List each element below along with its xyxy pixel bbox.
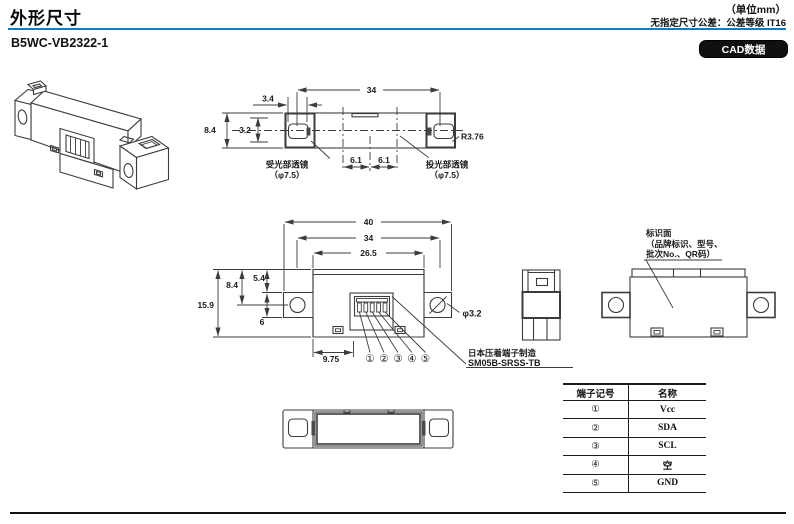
table-row: ② SDA	[563, 419, 706, 437]
pin-2-callout: ②	[379, 353, 389, 365]
tolerance-note: 无指定尺寸公差：公差等级 IT16	[650, 15, 786, 29]
front-dim-hole-dia: φ3.2	[463, 309, 482, 319]
bottom-view	[283, 410, 453, 448]
marking-surface-detail-2: 批次No.、QR码）	[646, 249, 715, 259]
top-dim-3-2: 3.2	[239, 125, 251, 135]
cad-data-button[interactable]: CAD数据	[699, 40, 788, 58]
top-dim-34: 34	[367, 85, 377, 95]
marking-surface-label: 标识面	[645, 228, 672, 238]
terminal-mark: ④	[563, 456, 629, 474]
terminal-name: SDA	[629, 419, 707, 437]
table-row: ③ SCL	[563, 437, 706, 455]
connector-maker-note: 日本压着端子制造	[468, 348, 537, 358]
top-dim-8-4: 8.4	[204, 125, 216, 135]
terminal-table: 端子记号 名称 ① Vcc ② SDA ③ SCL ④ 空 ⑤ GND	[563, 383, 706, 493]
terminal-mark: ②	[563, 419, 629, 437]
top-view: 34 3.4 8.4 3.2 6.1 6.1 R3.76 受光部透镜 （φ7.5…	[204, 85, 484, 180]
front-dim-40: 40	[364, 217, 374, 227]
top-dim-6-1-left: 6.1	[350, 155, 362, 165]
terminal-mark: ⑤	[563, 474, 629, 492]
terminal-mark: ③	[563, 437, 629, 455]
terminal-name: Vcc	[629, 401, 707, 419]
title-underline	[8, 28, 786, 30]
table-header-row: 端子记号 名称	[563, 384, 706, 401]
back-view: 标识面 （品牌标识、型号、 批次No.、QR码）	[602, 228, 775, 337]
pin-4-callout: ④	[407, 353, 417, 365]
front-dim-6: 6	[260, 317, 265, 327]
front-view: 40 34 26.5 15.9 8.4 5.4 6 9.75 φ3.2	[197, 217, 573, 368]
table-row: ⑤ GND	[563, 474, 706, 492]
emitter-lens-label: 投光部透镜	[426, 160, 469, 170]
table-header-name: 名称	[629, 384, 707, 401]
connector-part-number: SM05B-SRSS-TB	[468, 358, 541, 368]
pin-1-callout: ①	[365, 353, 375, 365]
top-dim-6-1-right: 6.1	[378, 155, 390, 165]
pin-5-callout: ⑤	[421, 353, 431, 365]
terminal-mark: ①	[563, 401, 629, 419]
page-title: 外形尺寸	[10, 4, 82, 29]
front-dim-9-75: 9.75	[323, 354, 340, 364]
table-row: ① Vcc	[563, 401, 706, 419]
front-dim-8-4: 8.4	[226, 280, 238, 290]
page-footer-rule	[10, 512, 786, 514]
isometric-view	[15, 81, 169, 189]
top-dim-3-4: 3.4	[262, 94, 274, 104]
front-dim-5-4: 5.4	[253, 273, 265, 283]
front-dim-34: 34	[364, 233, 374, 243]
emitter-lens-diameter: （φ7.5）	[430, 170, 465, 180]
top-dim-radius: R3.76	[461, 132, 484, 142]
pin-3-callout: ③	[393, 353, 403, 365]
table-row: ④ 空	[563, 456, 706, 474]
front-dim-26-5: 26.5	[360, 248, 377, 258]
terminal-name: GND	[629, 474, 707, 492]
front-dim-15-9: 15.9	[197, 300, 214, 310]
table-header-mark: 端子记号	[563, 384, 629, 401]
terminal-name: 空	[629, 456, 707, 474]
terminal-name: SCL	[629, 437, 707, 455]
receiver-lens-label: 受光部透镜	[266, 160, 309, 170]
marking-surface-detail-1: （品牌标识、型号、	[646, 239, 723, 249]
side-view	[523, 270, 561, 340]
receiver-lens-diameter: （φ7.5）	[270, 170, 305, 180]
model-number: B5WC-VB2322-1	[11, 36, 108, 50]
